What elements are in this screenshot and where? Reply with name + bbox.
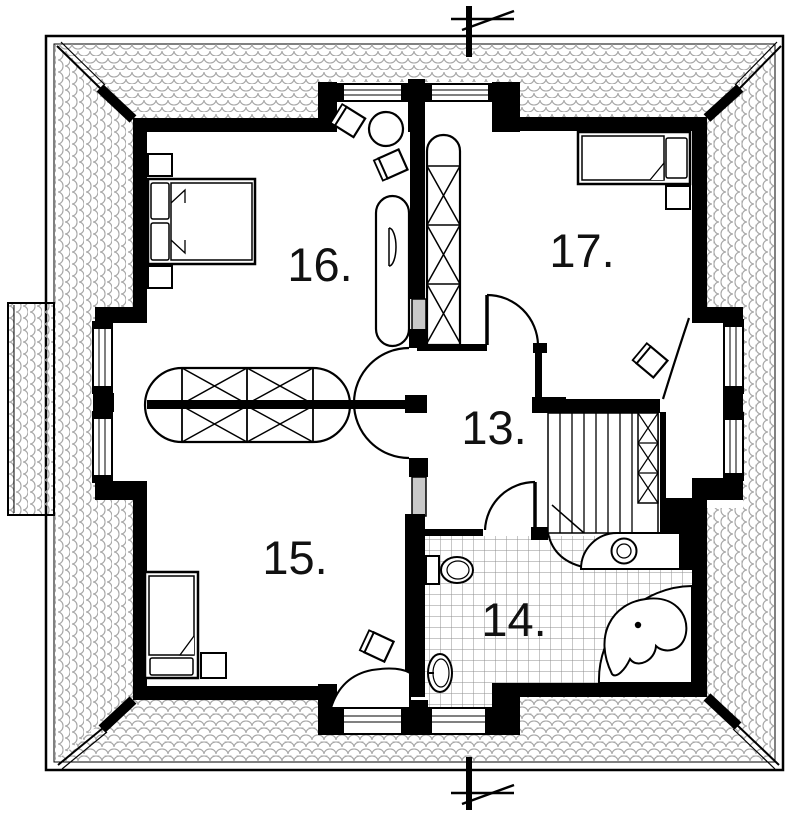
window-icon-west-lower [93,412,112,482]
nightstand-icon [148,154,172,176]
window-icon-west-upper [93,322,112,393]
room-label-17: 17. [549,224,614,277]
room-label-16: 16. [287,238,352,291]
wardrobe-x-icon-stair [638,413,658,503]
window-icon-bottom-right [425,708,492,734]
window-icon-east-upper [724,320,743,393]
window-icon-bottom-left [337,708,408,734]
window-icon-top-right [425,84,495,101]
room-label-14: 14. [481,593,546,646]
window-icon-east-lower [724,413,743,480]
door-panel-room15 [412,477,426,516]
nightstand-icon [201,653,226,678]
cabinet-icon [376,196,409,346]
toilet-icon [426,556,473,584]
single-bed-icon [578,132,690,184]
room-label-15: 15. [262,531,327,584]
door-panel-room16 [412,299,426,331]
wardrobe-x-icon-room17 [427,135,460,345]
desk-chair-icon [369,112,403,146]
room-label-13: 13. [461,401,526,454]
nightstand-icon [148,266,172,288]
window-icon-top-left [337,84,408,101]
floor-plan-canvas: 16. 17. 13. 15. 14. [0,0,792,816]
washbasin-icon [428,654,452,692]
double-bed-icon [148,179,255,264]
nightstand-icon [666,186,690,209]
single-bed-icon [145,572,198,678]
floor-plan-drawing: 16. 17. 13. 15. 14. [0,0,792,816]
